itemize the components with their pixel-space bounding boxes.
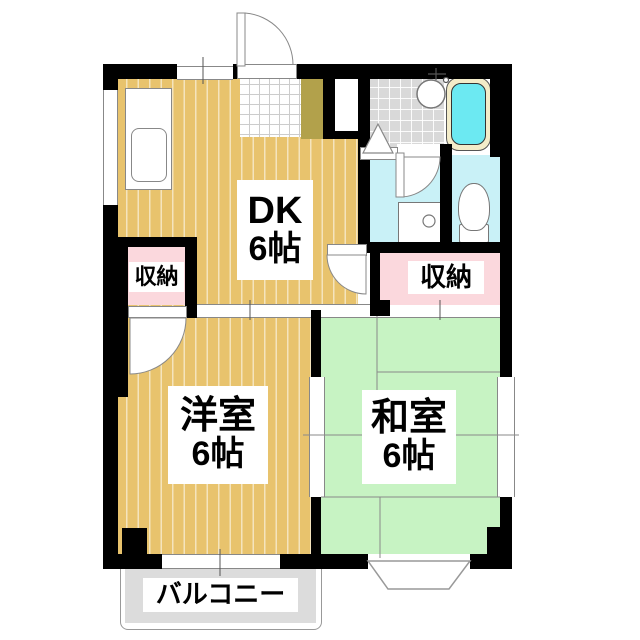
wall-below-washrooms [366,242,512,253]
doorway-bay-window [368,554,470,569]
door-bar-bath-fold [360,147,398,160]
wall-closet-left-top [103,237,197,247]
bathroom-tile-floor [368,77,444,150]
western-room-size: 6帖 [192,437,245,473]
dk-room-opening [197,304,500,318]
wall-left-thick [103,237,128,397]
closet-right-text: 収納 [420,264,472,291]
wall-corner-block-left [122,528,147,558]
japanese-room-label: 和室 6帖 [362,390,456,484]
door-swing-entrance [245,13,293,65]
wall-nook-bottom [327,131,358,139]
balcony-text: バルコニー [156,581,285,608]
wall-room-divider-lower [311,497,321,560]
western-room-name: 洋室 [180,397,256,437]
utility-nook [335,75,358,131]
wall-bottom-middle [280,554,368,569]
wall-washroom-toilet [440,148,452,253]
wall-nook-left [323,64,335,139]
entrance-tile-floor [240,75,301,137]
wall-right-middle [500,157,512,377]
closet-left-text: 収納 [134,265,178,288]
window-balcony [162,554,280,569]
doorway-washroom-top [397,144,440,158]
wall-right-lower [500,497,512,569]
floor-plan: DK 6帖 洋室 6帖 和室 6帖 収納 収納 バルコニー [0,0,640,640]
kitchen-sink [131,128,167,182]
door-leaf-entrance [237,13,245,66]
wall-room-divider-upper [311,310,321,377]
bathtub [451,83,486,145]
closet-left-label: 収納 [129,262,184,292]
washing-machine-pan [398,202,443,247]
dk-size: 6帖 [249,232,302,268]
japanese-room-name: 和室 [371,399,447,439]
balcony-label: バルコニー [143,578,298,612]
window-japanese-right [497,377,515,497]
window-top [177,66,233,80]
door-bar-washroom-south [327,244,367,256]
wall-japanese-corner-stub [370,300,390,316]
opening-room-divider [309,377,325,497]
shoe-cabinet [301,75,323,139]
closet-right-label: 収納 [408,261,484,294]
western-room-label: 洋室 6帖 [168,386,268,484]
toilet-bowl [458,183,490,231]
dk-label: DK 6帖 [237,180,313,280]
wall-right-upper [490,64,512,157]
window-kitchen-left [103,90,118,205]
door-bar-western-room [128,306,187,318]
door-bar-entrance [237,64,297,79]
dk-name: DK [248,192,303,232]
japanese-room-size: 6帖 [383,439,436,475]
